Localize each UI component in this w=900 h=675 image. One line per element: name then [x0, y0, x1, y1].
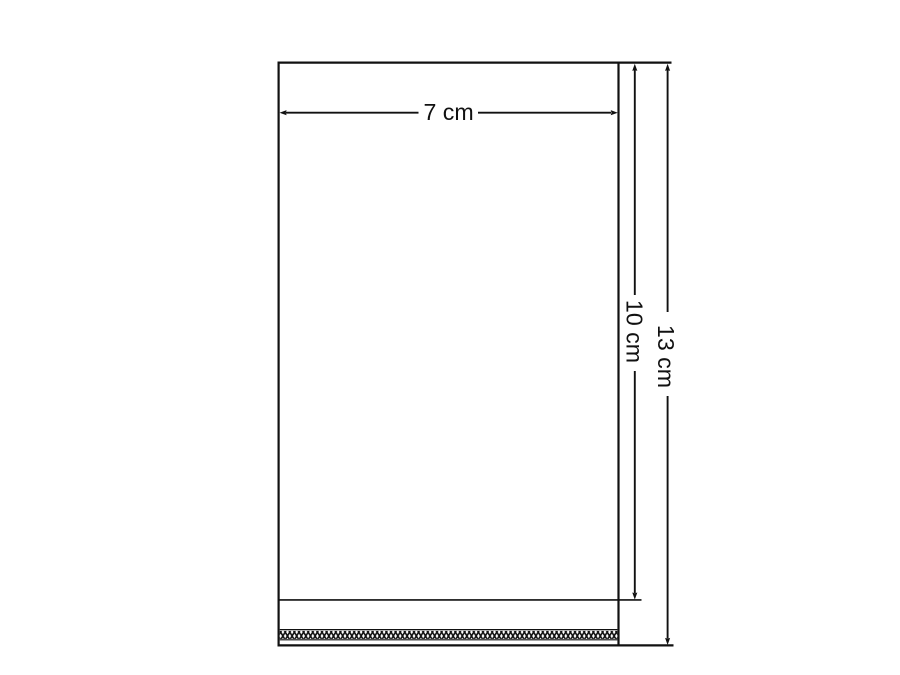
svg-text:10 cm: 10 cm — [622, 300, 648, 363]
svg-text:13 cm: 13 cm — [653, 325, 679, 388]
svg-text:7 cm: 7 cm — [423, 99, 473, 125]
